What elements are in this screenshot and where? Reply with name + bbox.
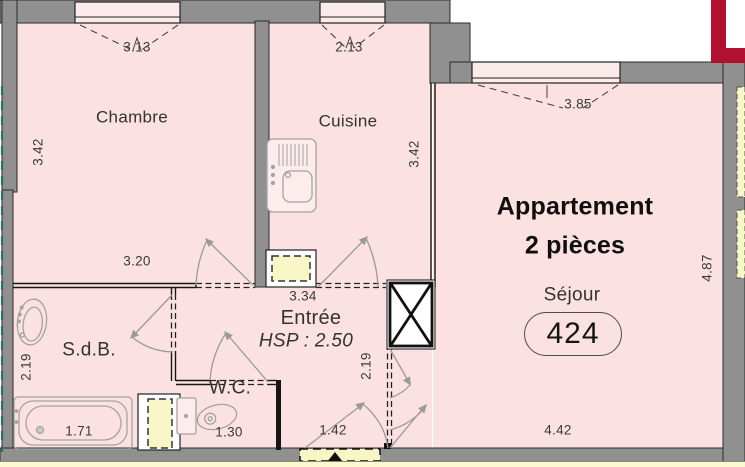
shaft-x-icon	[387, 280, 435, 349]
room-label-chambre: Chambre	[96, 109, 168, 126]
balcony-edge-right	[737, 87, 745, 278]
floorplan: Chambre Cuisine Appartement 2 pièces Séj…	[0, 0, 745, 467]
bottom-strip	[0, 462, 745, 467]
room-label-sejour: Séjour	[544, 286, 601, 305]
ceiling-height-label: HSP : 2.50	[259, 332, 353, 351]
kitchen-sink-unit	[267, 139, 316, 212]
wc-right-wall	[276, 380, 281, 450]
dim-chambre-height: 3.42	[31, 138, 45, 165]
room-label-wc: W.C.	[209, 379, 251, 398]
apartment-title-line2: 2 pièces	[525, 234, 625, 259]
dim-entree-door: 1.42	[319, 423, 346, 437]
floorplan-drawing	[0, 0, 745, 467]
unit-number-badge: 424	[524, 312, 622, 356]
room-label-cuisine: Cuisine	[319, 113, 378, 130]
dim-bathtub: 1.71	[65, 424, 92, 438]
outside-area	[450, 0, 745, 62]
dim-entree-width: 3.34	[289, 289, 316, 303]
room-label-sdb: S.d.B.	[62, 341, 116, 360]
dim-entree-height: 2.19	[359, 352, 373, 379]
dim-sejour-height: 4.87	[700, 254, 714, 281]
dim-chambre-window: 3.13	[123, 40, 150, 54]
duct-cuisine	[266, 250, 316, 287]
entrance-door-marker	[300, 449, 380, 462]
window-cuisine	[320, 2, 385, 23]
dim-chambre-width: 3.20	[123, 254, 150, 268]
door-sdb-wc	[138, 394, 180, 450]
dim-sejour-width: 4.42	[544, 423, 571, 437]
window-sejour	[472, 62, 620, 83]
dim-sejour-window: 3.85	[564, 97, 591, 111]
dim-sdb-height: 2.19	[19, 353, 33, 380]
dim-cuisine-height: 3.42	[407, 140, 421, 167]
apartment-title-line1: Appartement	[497, 195, 653, 220]
dim-wc-width: 1.30	[215, 425, 242, 439]
window-chambre	[75, 2, 180, 23]
room-label-entree: Entrée	[281, 308, 342, 328]
dim-cuisine-window: 2.13	[335, 40, 362, 54]
